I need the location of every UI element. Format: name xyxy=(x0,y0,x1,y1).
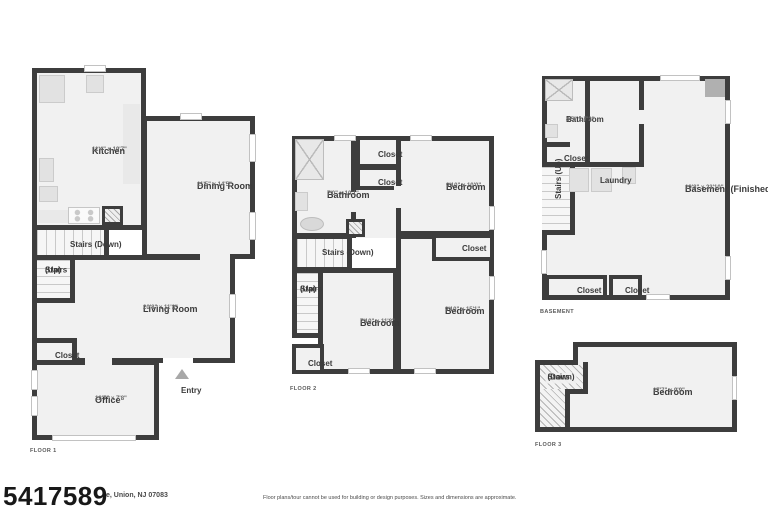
window xyxy=(646,294,670,300)
window xyxy=(31,370,38,390)
window xyxy=(180,113,202,120)
wall xyxy=(535,360,540,432)
window xyxy=(229,294,236,318)
hatched-area xyxy=(102,206,123,225)
disclaimer-text: Floor plans/tour cannot be used for buil… xyxy=(263,495,516,501)
window xyxy=(725,256,731,280)
room-dims: 9'10" x 10'0" xyxy=(446,183,481,190)
wall xyxy=(639,124,644,167)
bedroom-fill xyxy=(570,394,583,427)
stairs-up-label: Stairs (Up) xyxy=(300,286,316,295)
floor2-tag: FLOOR 2 xyxy=(290,386,317,392)
kitchen-sink xyxy=(39,158,54,182)
floor3-tag: FLOOR 3 xyxy=(535,442,562,448)
window xyxy=(249,212,256,240)
basement-plan: Bathroom 4'5" x 7'2" Closet Stairs (Up) … xyxy=(540,74,732,318)
room-dims: 19'8" x 23'10" xyxy=(685,185,724,192)
porch-step xyxy=(52,435,136,441)
stairs-up-label: Stairs (Up) xyxy=(45,267,61,276)
wall xyxy=(639,76,644,110)
room-dims: 7'10" x 11'8" xyxy=(360,319,395,326)
window xyxy=(414,368,436,374)
basement-tag: BASEMENT xyxy=(540,309,574,315)
mls-number: 5417589 xyxy=(3,481,108,512)
window xyxy=(725,100,731,124)
entry-doorway xyxy=(163,358,193,364)
doorway xyxy=(394,186,403,208)
floor3-plan: Stairs (Down) Bedroom 17'7" x 9'9" FLOOR… xyxy=(535,340,740,454)
wall xyxy=(542,230,575,235)
floor2-plan: Bathroom 7'0" x 10'1" Closet Closet Bedr… xyxy=(290,134,496,394)
stove-icon xyxy=(68,207,100,224)
window xyxy=(660,75,700,81)
floor-plan-sheet: Kitchen 11'4" x 19'7" Dining Room 11'5" … xyxy=(0,0,768,512)
window xyxy=(348,368,370,374)
wall xyxy=(573,342,737,347)
kitchen-counter xyxy=(39,75,65,103)
window xyxy=(541,250,547,274)
floor1-tag: FLOOR 1 xyxy=(30,448,57,454)
window xyxy=(31,396,38,416)
chimney xyxy=(705,79,725,97)
kitchen-counter xyxy=(38,210,68,223)
window xyxy=(410,135,432,141)
room-dims: 20'8" x 11'3" xyxy=(143,305,178,312)
doorway xyxy=(200,253,230,261)
room-dims: 12'7" x 7'8" xyxy=(95,396,127,403)
wall xyxy=(565,392,570,430)
window xyxy=(489,206,495,230)
window xyxy=(334,135,356,141)
room-dims: 7'0" x 10'1" xyxy=(327,191,359,198)
room-dims: 9'10" x 15'1" xyxy=(445,307,480,314)
kitchen-appliance xyxy=(39,186,58,202)
room-dims: 11'4" x 19'7" xyxy=(92,147,127,154)
floor1-plan: Kitchen 11'4" x 19'7" Dining Room 11'5" … xyxy=(30,64,260,456)
toilet-icon xyxy=(300,217,324,231)
wall xyxy=(535,360,578,365)
shower-icon xyxy=(545,79,573,101)
floor1-stairs-up xyxy=(32,255,75,303)
window xyxy=(84,65,106,72)
wall xyxy=(583,362,588,392)
washer-icon xyxy=(569,168,589,192)
bathroom-sink xyxy=(295,192,308,211)
stairs-down-label: Stairs (Down) xyxy=(545,373,576,384)
stairs-hatch xyxy=(540,389,565,427)
window xyxy=(249,134,256,162)
window xyxy=(732,376,737,400)
hatched-area xyxy=(346,219,365,237)
kitchen-counter xyxy=(123,104,140,184)
wall xyxy=(542,142,570,147)
room-dims: 11'5" x 14'5" xyxy=(197,182,232,189)
kitchen-counter xyxy=(86,75,104,93)
shower-icon xyxy=(295,139,324,180)
doorway xyxy=(85,356,112,365)
window xyxy=(489,276,495,300)
bathroom-sink xyxy=(545,124,558,138)
property-address: e, Union, NJ 07083 xyxy=(106,492,168,499)
room-dims: 4'5" x 7'2" xyxy=(566,117,595,124)
room-dims: 17'7" x 9'9" xyxy=(653,388,685,395)
entry-arrow-icon xyxy=(175,369,189,379)
